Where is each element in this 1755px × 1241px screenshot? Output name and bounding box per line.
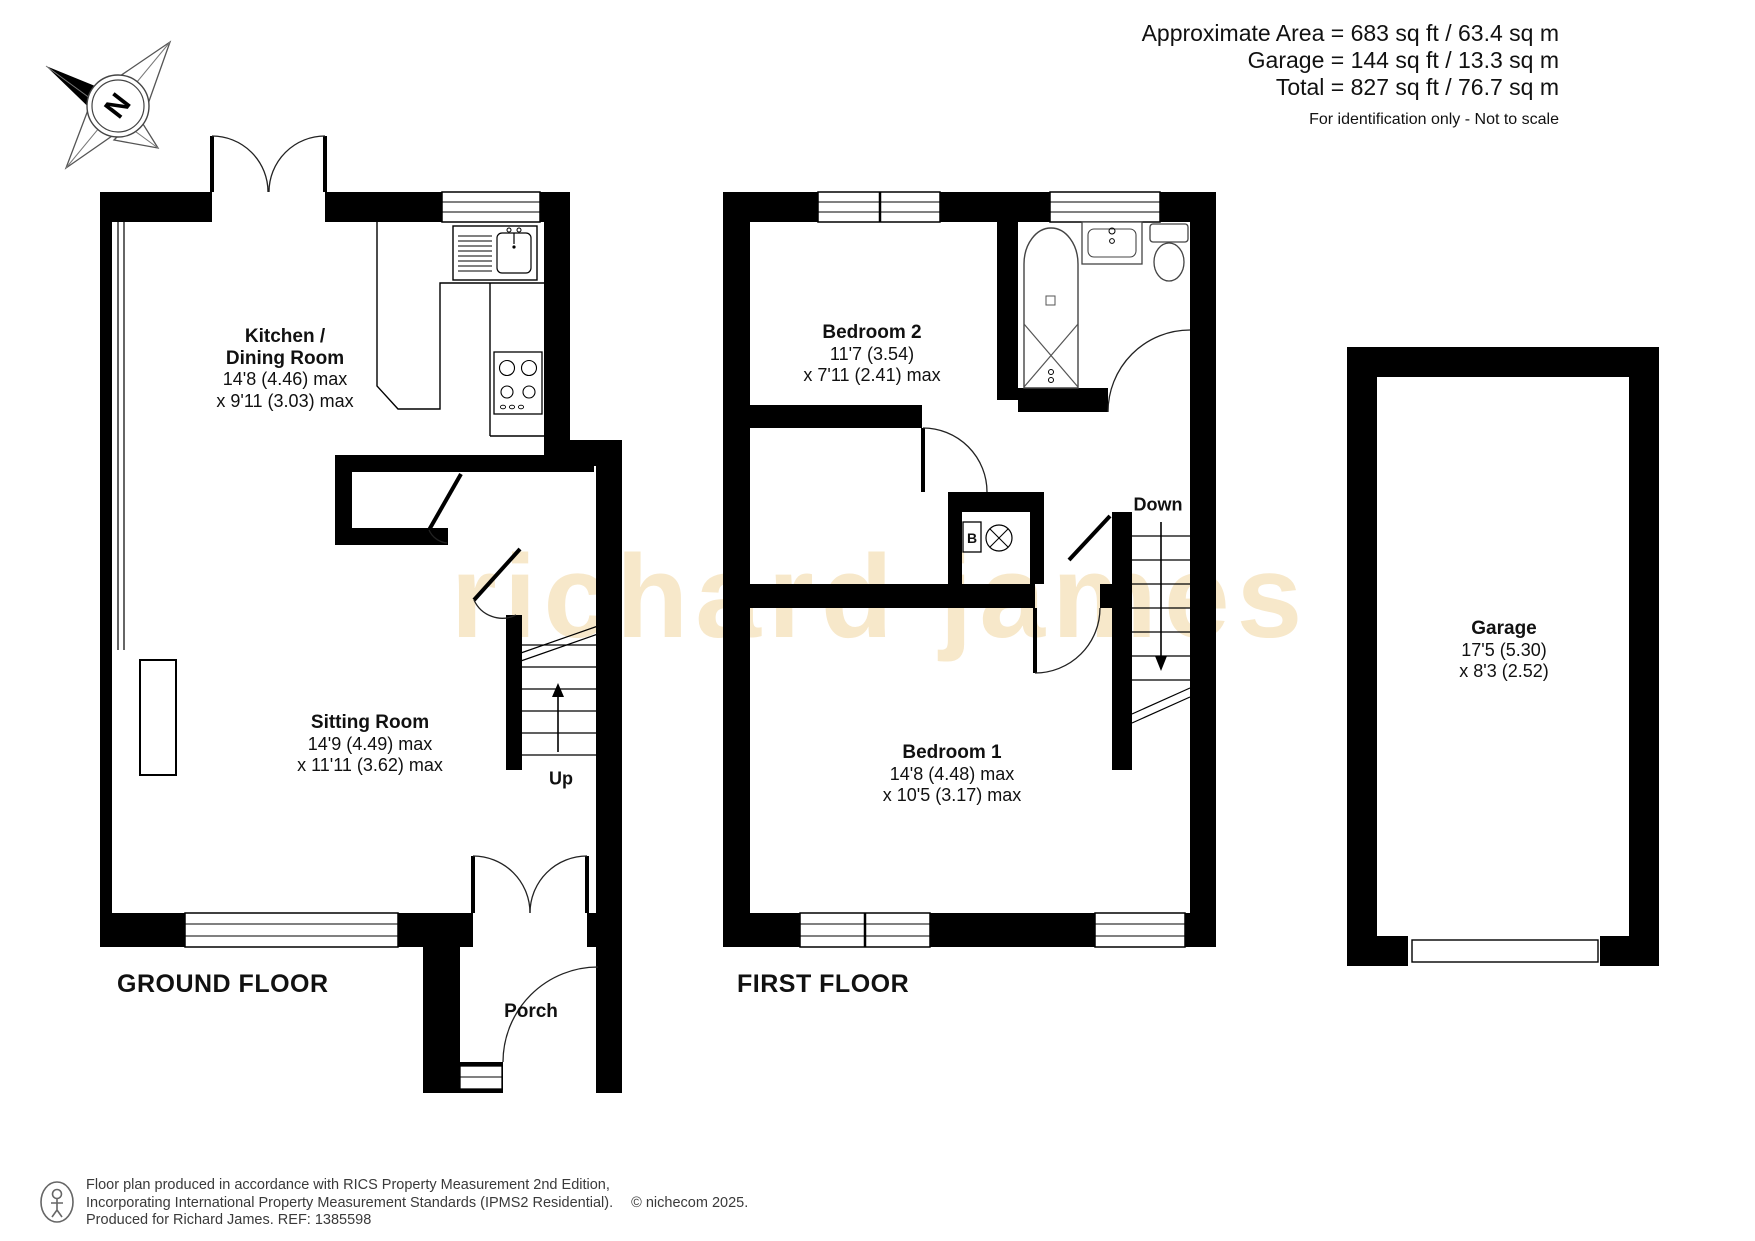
hob-icon [494,352,542,414]
hall-door-icon [474,549,520,618]
footer-line2: Incorporating International Property Mea… [86,1195,748,1213]
window-bedroom2-icon [818,192,940,222]
window-bedroom1-icon [800,913,930,947]
kitchen-sink-icon [453,226,537,280]
floorplan-page: richard james N [0,0,1755,1241]
bedroom2-label: Bedroom 2 11'7 (3.54) x 7'11 (2.41) max [803,322,940,387]
area-line: Total = 827 sq ft / 76.7 sq m [1142,74,1559,101]
bath-icon [1024,228,1078,388]
nichecom-logo-icon [41,1182,73,1222]
boiler-label: B [967,530,977,546]
bedroom2-door-icon [923,428,987,492]
first-floor-caption: FIRST FLOOR [737,970,909,999]
basin-icon [1082,222,1142,264]
kitchen-label: Kitchen / Dining Room 14'8 (4.46) max x … [216,326,353,412]
window-sitting-icon [185,913,398,947]
garage-label: Garage 17'5 (5.30) x 8'3 (2.52) [1459,618,1548,683]
footer-line3: Produced for Richard James. REF: 1385598 [86,1212,748,1230]
window-bathroom-icon [1050,192,1160,222]
sitting-room-label: Sitting Room 14'9 (4.49) max x 11'11 (3.… [297,712,443,777]
ground-floor-caption: GROUND FLOOR [117,970,329,999]
french-doors-icon [212,136,325,192]
footer-line1: Floor plan produced in accordance with R… [86,1177,748,1195]
area-line: Approximate Area = 683 sq ft / 63.4 sq m [1142,20,1559,47]
porch-double-doors-icon [473,856,587,913]
stairs-up-icon [518,626,598,755]
copyright: © nichecom 2025. [631,1195,748,1211]
stairs-up-label: Up [549,769,573,790]
area-summary: Approximate Area = 683 sq ft / 63.4 sq m… [1142,20,1559,133]
window-landing-icon [1095,913,1185,947]
extractor-fan-icon [986,525,1012,551]
toilet-icon [1150,224,1188,281]
window-kitchen-icon [442,192,540,222]
landing-door-icon [1069,516,1110,560]
footer-text: Floor plan produced in accordance with R… [86,1177,748,1230]
ground-floor-plan [100,136,622,1093]
area-line: Garage = 144 sq ft / 13.3 sq m [1142,47,1559,74]
bedroom1-label: Bedroom 1 14'8 (4.48) max x 10'5 (3.17) … [883,742,1022,807]
disclaimer: For identification only - Not to scale [1142,106,1559,133]
bathroom-door-icon [1108,330,1190,412]
porch-label: Porch [504,1001,558,1023]
window-left-icon [118,212,176,775]
compass-icon: N [46,42,170,168]
stairs-down-label: Down [1134,495,1183,516]
first-floor-plan [723,192,1216,947]
person-icon [53,1190,62,1199]
stairs-down-icon [1132,522,1190,723]
garage-door-icon [1412,940,1598,962]
window-porch-icon [460,1066,502,1089]
bedroom1-door-icon [1035,608,1100,673]
